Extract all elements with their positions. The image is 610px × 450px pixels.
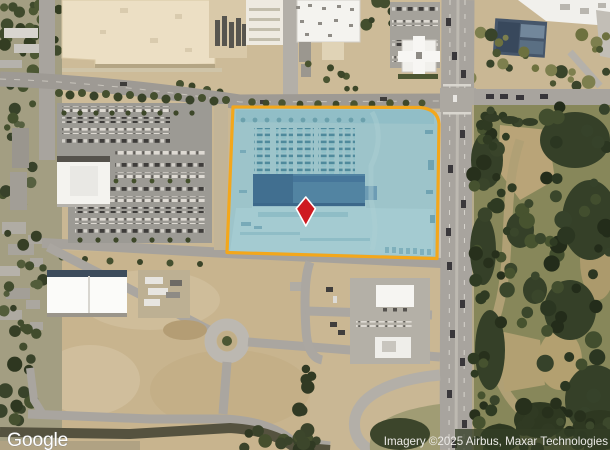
svg-text:Google: Google: [7, 429, 68, 450]
svg-text:Imagery ©2025 Airbus, Maxar Te: Imagery ©2025 Airbus, Maxar Technologies: [384, 435, 608, 448]
